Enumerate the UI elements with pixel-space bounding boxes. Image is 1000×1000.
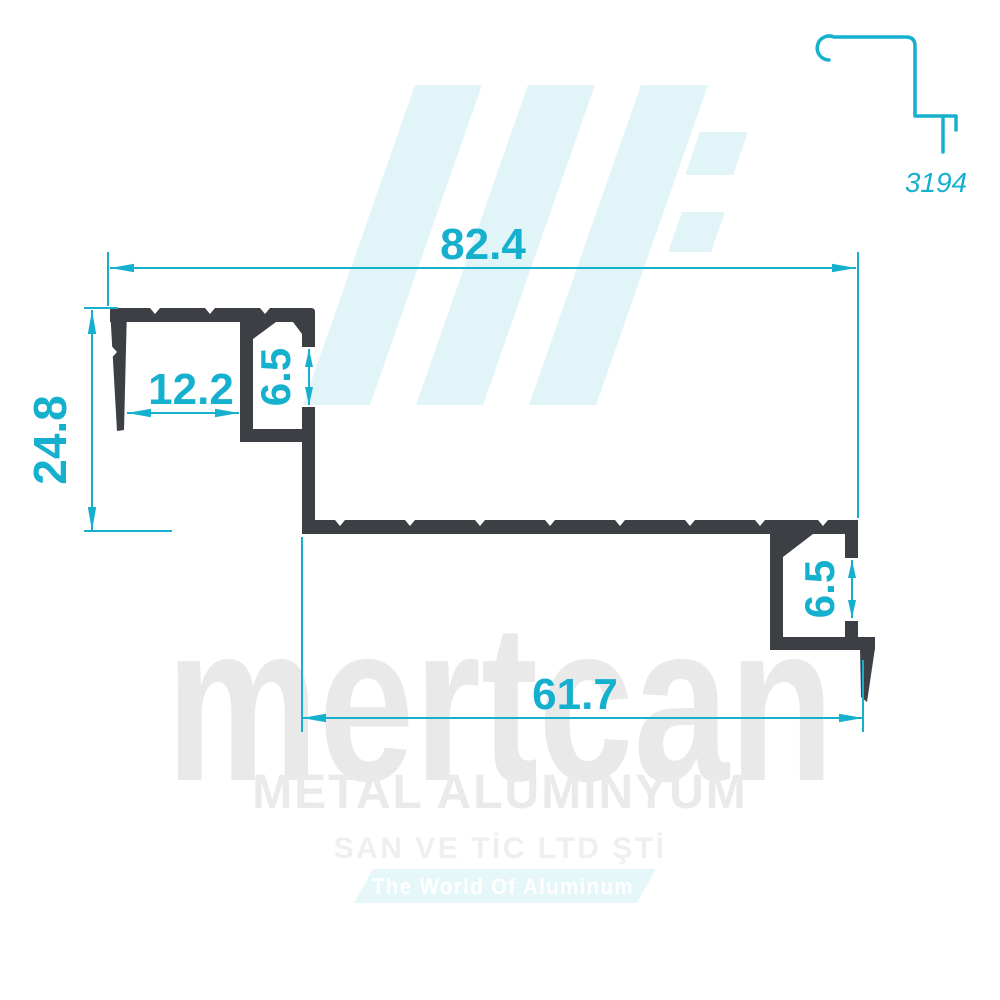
slogan-text: The World Of Aluminum (372, 874, 634, 899)
company-line2: SAN VE TİC LTD ŞTİ (334, 832, 667, 865)
logo-stripe (685, 132, 748, 175)
profile-thumbnail-icon (817, 36, 956, 152)
profile-lower-channel-bottom-lip (845, 621, 858, 641)
dim-overall-height (84, 308, 172, 531)
profile-lower-channel-bottom (770, 637, 875, 650)
profile-lower-channel-left-wall (770, 534, 783, 650)
dim-front-channel-width-label: 12.2 (148, 365, 234, 414)
dim-overall-width-label: 82.4 (440, 220, 526, 269)
profile-step-wall (302, 407, 315, 534)
dim-bottom-slot-height-label: 6.5 (796, 560, 843, 618)
dim-top-slot-height-label: 6.5 (252, 348, 299, 406)
dim-base-width-label: 61.7 (532, 670, 618, 719)
profile-lower-channel-top-lip (845, 534, 858, 558)
profile-number: 3194 (905, 167, 967, 198)
logo-stripe (668, 212, 725, 252)
profile-left-flange (110, 308, 127, 431)
dim-overall-height-label: 24.8 (24, 395, 76, 485)
drawing-sheet: mertcan METAL ALÜMİNYUM SAN VE TİC LTD Ş… (0, 0, 1000, 1000)
profile-chamfer (253, 322, 276, 339)
profile-base-bar (302, 520, 858, 534)
brand-watermark: mertcan METAL ALÜMİNYUM SAN VE TİC LTD Ş… (166, 576, 834, 903)
company-line1: METAL ALÜMİNYUM (252, 766, 748, 819)
profile-upper-channel-bottom (240, 429, 303, 442)
profile-drawing: mertcan METAL ALÜMİNYUM SAN VE TİC LTD Ş… (0, 0, 1000, 1000)
profile-upper-channel-top-lip (302, 322, 315, 347)
profile-chamfer (783, 534, 813, 557)
profile-chamfer (293, 322, 302, 334)
